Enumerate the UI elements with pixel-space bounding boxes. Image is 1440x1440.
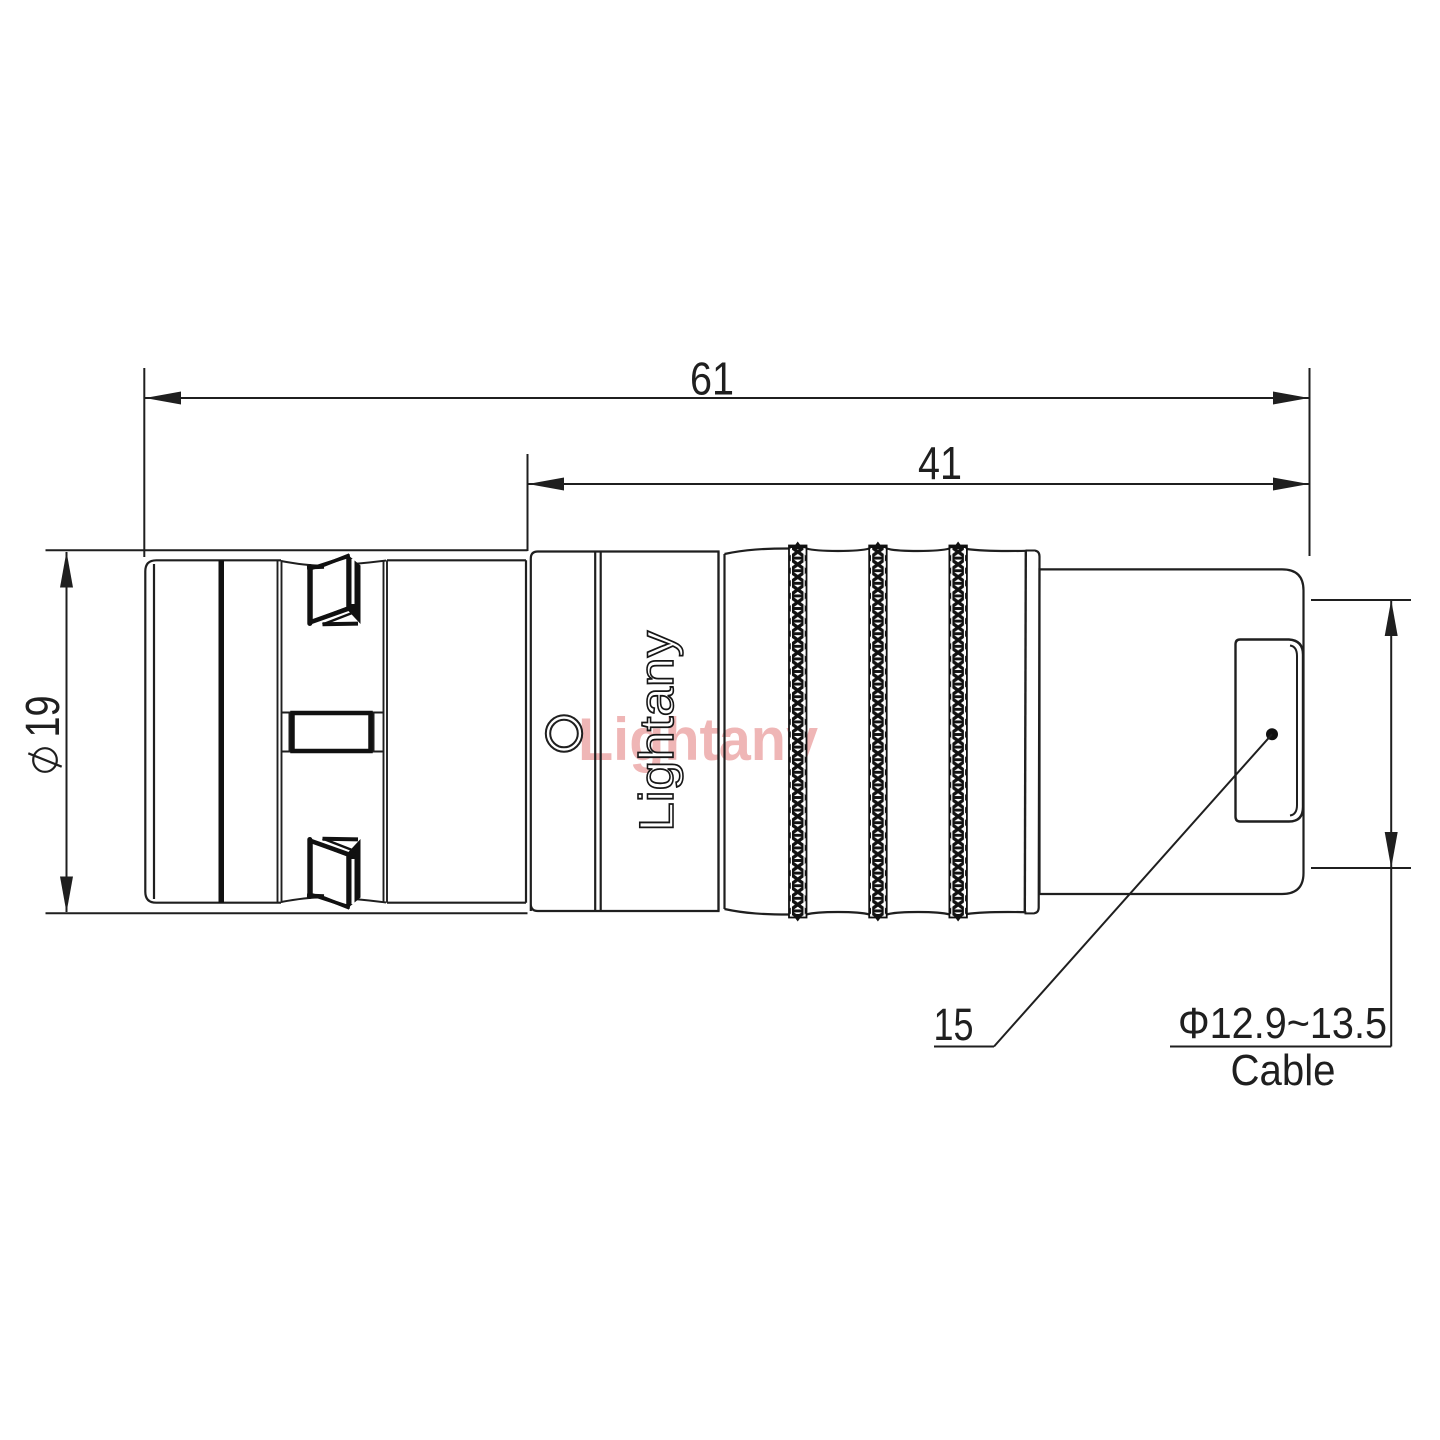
svg-text:Cable: Cable [1231,1046,1336,1095]
svg-text:41: 41 [918,437,962,489]
svg-text:Lightany: Lightany [578,706,819,773]
svg-text:19: 19 [17,696,70,738]
svg-text:Φ12.9~13.5: Φ12.9~13.5 [1178,999,1387,1048]
svg-text:61: 61 [690,353,734,405]
svg-text:Lightany: Lightany [631,631,684,832]
svg-text:15: 15 [934,999,974,1050]
